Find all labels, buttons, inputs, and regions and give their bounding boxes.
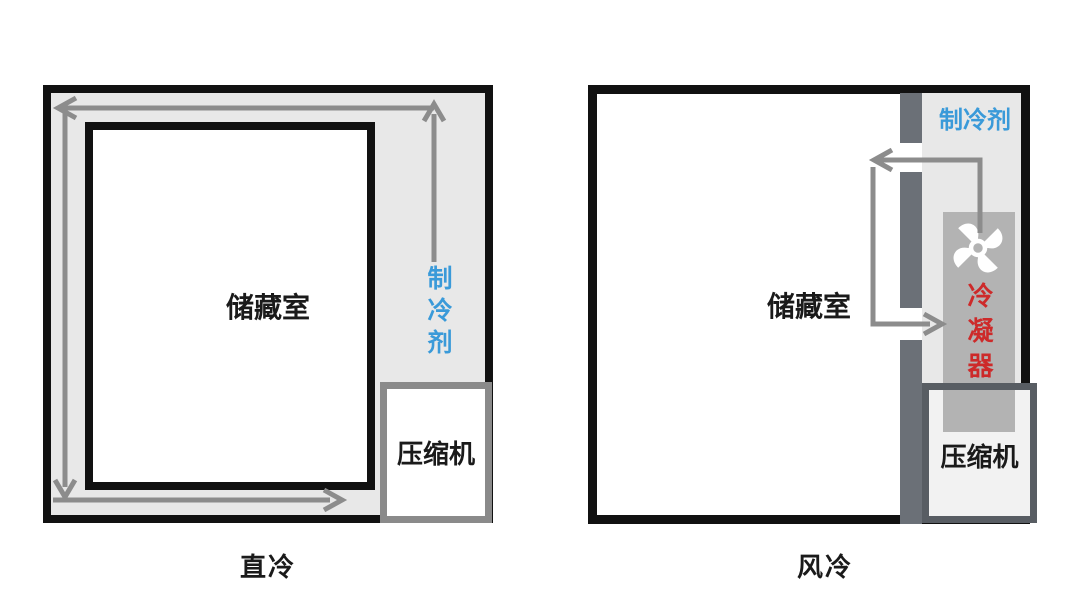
compressor-box: 压缩机 — [380, 382, 492, 523]
air-duct-wall-segment-top — [900, 93, 922, 143]
refrigerant-label: 制冷剂 — [423, 265, 453, 369]
fan-icon — [948, 218, 1008, 278]
air-duct-wall-segment-bottom — [900, 340, 922, 524]
air-duct-wall-segment-middle — [900, 172, 922, 308]
compressor-label: 压缩机 — [397, 434, 475, 471]
storage-room-label: 储藏室 — [226, 286, 310, 326]
compressor-label: 压缩机 — [940, 437, 1018, 474]
refrigerant-label: 制冷剂 — [933, 106, 1017, 136]
storage-room-label: 储藏室 — [767, 285, 851, 325]
condenser-label: 冷凝器 — [965, 282, 993, 392]
refrigeration-comparison-diagram: 储藏室 压缩机 制冷剂 直冷 储藏室 压缩机 冷凝器 制冷剂 风冷 — [0, 0, 1080, 608]
direct-cooling-storage-room: 储藏室 — [85, 122, 375, 490]
direct-cooling-caption: 直冷 — [43, 547, 493, 584]
air-cooling-caption: 风冷 — [600, 547, 1050, 584]
